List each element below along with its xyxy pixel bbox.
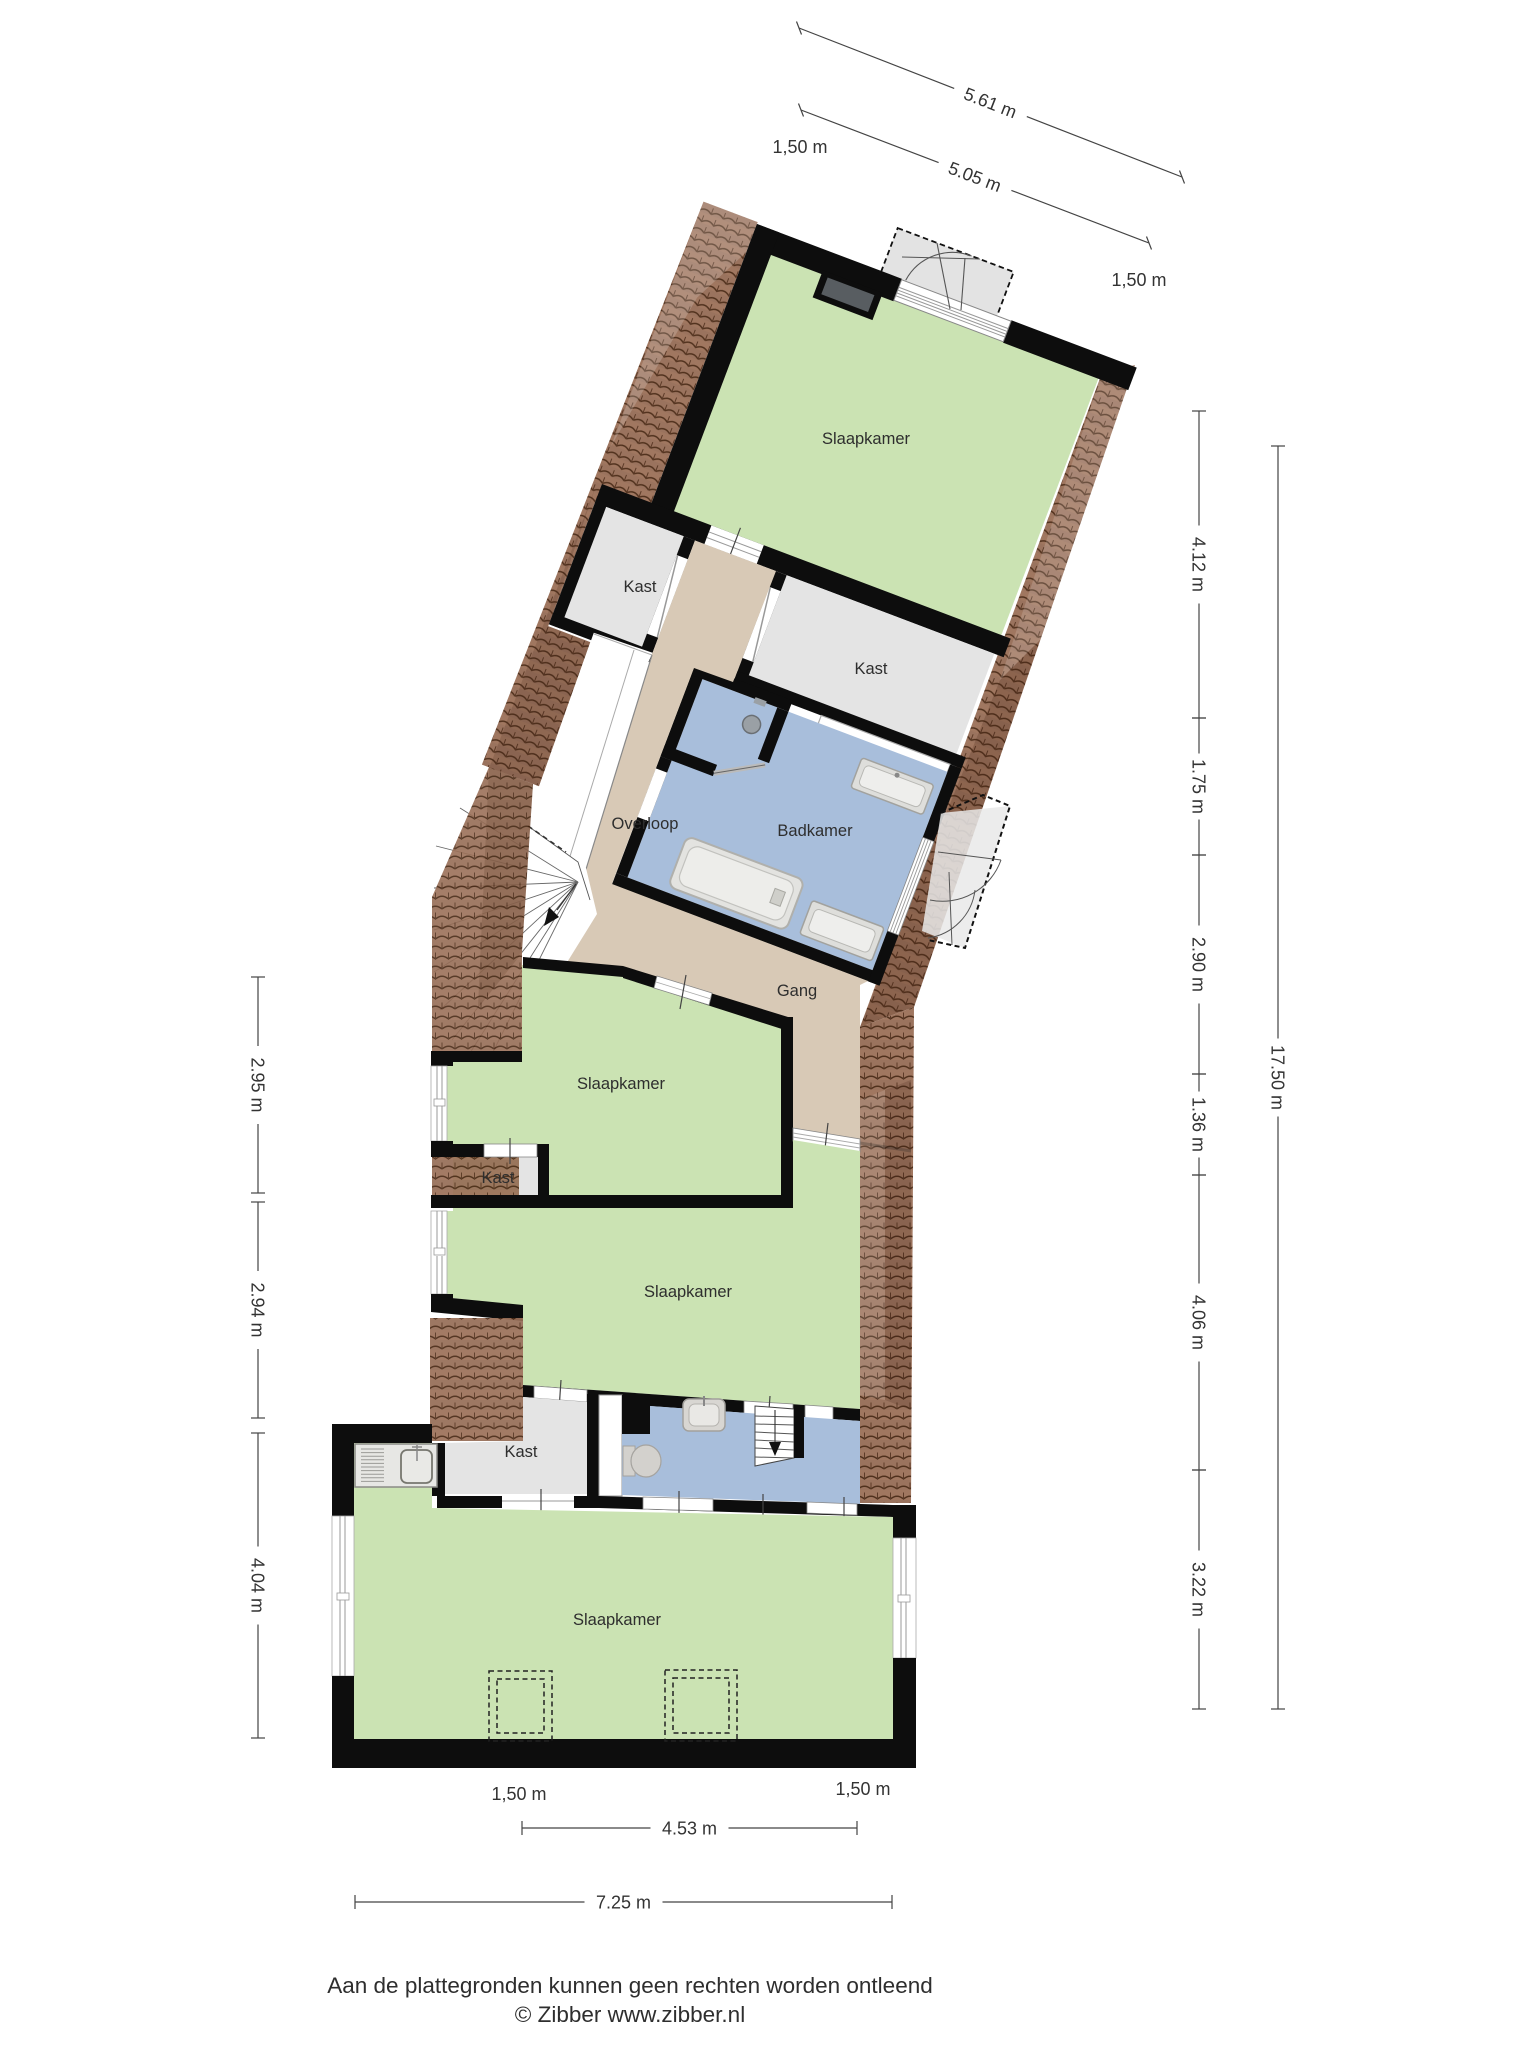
svg-text:1,50 m: 1,50 m: [491, 1784, 546, 1804]
svg-text:1.36 m: 1.36 m: [1189, 1097, 1209, 1152]
svg-text:7.25 m: 7.25 m: [596, 1893, 651, 1913]
svg-text:© Zibber www.zibber.nl: © Zibber www.zibber.nl: [515, 2002, 745, 2027]
svg-text:Slaapkamer: Slaapkamer: [822, 430, 911, 448]
svg-text:Slaapkamer: Slaapkamer: [644, 1283, 733, 1301]
svg-text:Kast: Kast: [504, 1443, 537, 1461]
svg-text:4.53 m: 4.53 m: [662, 1819, 717, 1839]
svg-text:17.50 m: 17.50 m: [1268, 1045, 1288, 1110]
svg-text:1.75 m: 1.75 m: [1189, 759, 1209, 814]
svg-text:4.04 m: 4.04 m: [248, 1558, 268, 1613]
svg-text:Kast: Kast: [623, 578, 656, 596]
svg-text:1,50 m: 1,50 m: [772, 137, 827, 157]
svg-text:Badkamer: Badkamer: [777, 822, 853, 840]
svg-text:4.12 m: 4.12 m: [1189, 537, 1209, 592]
svg-text:Kast: Kast: [481, 1169, 514, 1187]
svg-text:Slaapkamer: Slaapkamer: [577, 1075, 666, 1093]
svg-text:1,50 m: 1,50 m: [835, 1779, 890, 1799]
svg-text:Aan de plattegronden kunnen ge: Aan de plattegronden kunnen geen rechten…: [327, 1973, 932, 1998]
svg-text:Kast: Kast: [854, 660, 887, 678]
svg-text:2.95 m: 2.95 m: [248, 1057, 268, 1112]
svg-text:4.06 m: 4.06 m: [1189, 1295, 1209, 1350]
svg-text:3.22 m: 3.22 m: [1189, 1562, 1209, 1617]
svg-text:Overloop: Overloop: [612, 815, 679, 833]
svg-text:2.94 m: 2.94 m: [248, 1282, 268, 1337]
svg-text:Gang: Gang: [777, 982, 817, 1000]
svg-text:Slaapkamer: Slaapkamer: [573, 1611, 662, 1629]
svg-text:2.90 m: 2.90 m: [1189, 937, 1209, 992]
svg-text:1,50 m: 1,50 m: [1111, 270, 1166, 290]
